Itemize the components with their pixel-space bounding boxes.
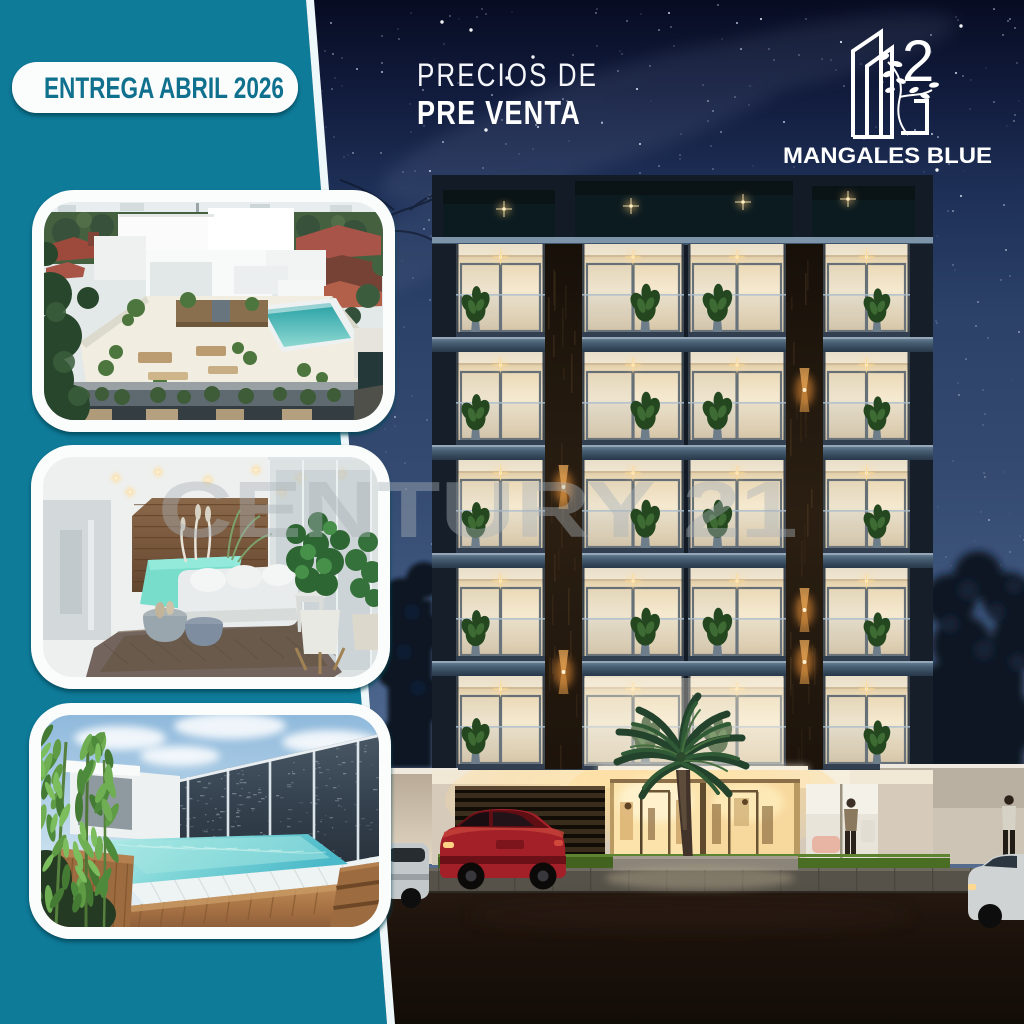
svg-text:2: 2 <box>902 29 934 94</box>
svg-text:ENTREGA ABRIL 2026: ENTREGA ABRIL 2026 <box>44 72 284 105</box>
svg-text:CENTURY 21: CENTURY 21 <box>158 465 798 554</box>
svg-text:PRE VENTA: PRE VENTA <box>417 94 581 131</box>
svg-text:MANGALES BLUE: MANGALES BLUE <box>783 143 992 168</box>
svg-text:PRECIOS DE: PRECIOS DE <box>417 57 598 93</box>
